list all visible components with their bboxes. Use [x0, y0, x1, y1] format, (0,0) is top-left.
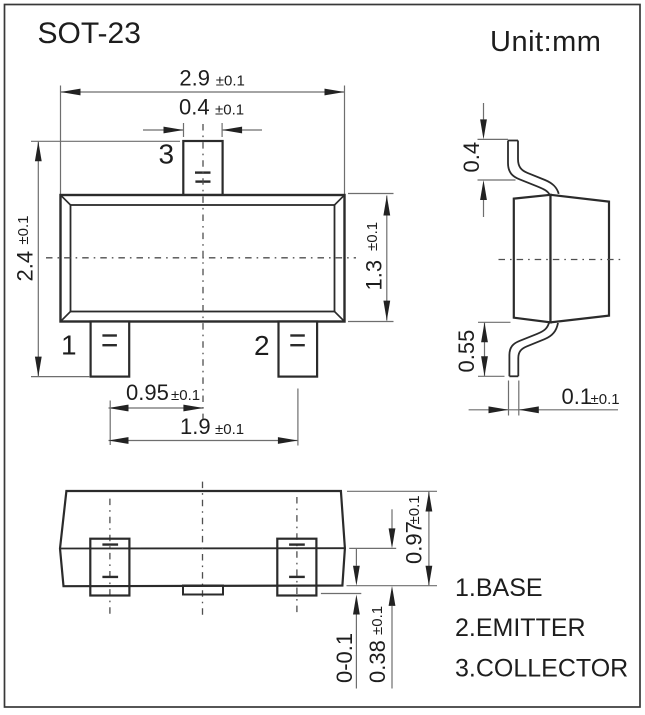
svg-text:±0.1: ±0.1: [364, 222, 381, 251]
svg-text:0.1: 0.1: [562, 384, 593, 409]
svg-text:0.38: 0.38: [365, 640, 390, 683]
svg-text:0.4: 0.4: [459, 142, 484, 173]
svg-text:±0.1: ±0.1: [15, 216, 32, 245]
svg-text:±0.1: ±0.1: [215, 421, 244, 438]
svg-text:0.55: 0.55: [454, 330, 479, 373]
svg-text:±0.1: ±0.1: [369, 606, 386, 635]
svg-text:3: 3: [159, 139, 175, 170]
svg-text:2.4: 2.4: [13, 251, 38, 282]
svg-text:0.97: 0.97: [402, 521, 427, 564]
svg-text:2.EMITTER: 2.EMITTER: [455, 614, 586, 642]
svg-text:1: 1: [61, 330, 77, 361]
svg-text:±0.1: ±0.1: [216, 73, 245, 90]
svg-text:1.BASE: 1.BASE: [455, 574, 543, 602]
svg-text:1.9: 1.9: [180, 414, 211, 439]
svg-text:0.95: 0.95: [126, 380, 169, 405]
svg-text:2: 2: [254, 330, 270, 361]
svg-text:±0.1: ±0.1: [171, 387, 200, 404]
svg-text:0-0.1: 0-0.1: [332, 633, 357, 683]
svg-text:1.3: 1.3: [362, 260, 387, 291]
svg-text:0.4: 0.4: [179, 95, 210, 120]
svg-text:±0.1: ±0.1: [215, 102, 244, 119]
svg-text:±0.1: ±0.1: [406, 495, 423, 524]
svg-text:±0.1: ±0.1: [591, 391, 620, 408]
svg-text:SOT-23: SOT-23: [38, 17, 141, 50]
svg-text:Unit:mm: Unit:mm: [490, 26, 601, 58]
svg-text:2.9: 2.9: [179, 66, 210, 91]
svg-text:3.COLLECTOR: 3.COLLECTOR: [455, 655, 628, 683]
